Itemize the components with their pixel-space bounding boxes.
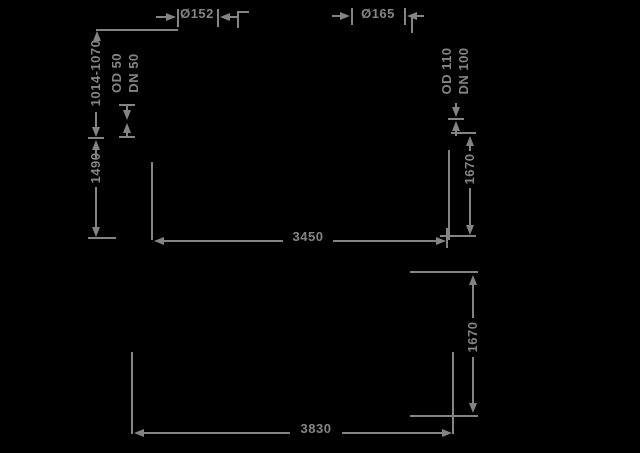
extension-tick — [217, 9, 219, 27]
upper-height-left-label: 1490 — [89, 149, 103, 187]
arrowhead-right — [340, 12, 350, 20]
extension-line — [410, 415, 478, 417]
dimension-line — [472, 357, 474, 405]
dimension-line — [472, 284, 474, 318]
left-pipe-dn-label: DN 50 — [127, 50, 141, 96]
bracket-line — [237, 11, 239, 28]
dimension-line — [95, 187, 97, 228]
dimension-line — [163, 240, 283, 242]
lower-height-right-label: 1670 — [466, 318, 480, 356]
extension-line — [88, 237, 116, 239]
right-connection-diameter-label: Ø165 — [353, 7, 403, 21]
dimension-line — [333, 240, 437, 242]
arrowhead-right — [442, 429, 452, 437]
extension-line — [410, 271, 478, 273]
upper-height-right-label: 1670 — [463, 150, 477, 188]
object-edge — [452, 352, 454, 434]
extension-tick — [404, 8, 406, 25]
bracket-line — [237, 11, 249, 13]
dimension-line — [342, 432, 444, 434]
arrowhead-right — [436, 237, 446, 245]
extension-tick — [448, 118, 464, 120]
bracket-line — [411, 16, 413, 33]
arrowhead-right — [166, 13, 176, 21]
arrowhead-down — [452, 107, 460, 117]
right-pipe-dn-label: DN 100 — [457, 44, 471, 98]
object-edge — [131, 352, 133, 434]
technical-drawing: Ø152 Ø165 1014-1070 OD 50 DN 50 OD 110 D… — [0, 0, 640, 453]
arrowhead-down — [469, 403, 477, 413]
left-connection-diameter-label: Ø152 — [178, 7, 216, 21]
dimension-line — [469, 188, 471, 227]
lower-width-label: 3830 — [290, 422, 342, 436]
dimension-line — [416, 15, 424, 17]
inlet-height-range-label: 1014-1070 — [89, 33, 103, 113]
upper-width-label: 3450 — [283, 230, 333, 244]
object-edge — [448, 150, 450, 240]
object-edge — [151, 162, 153, 240]
arrowhead-down — [466, 225, 474, 235]
arrowhead-down — [123, 110, 131, 120]
reference-line — [96, 29, 178, 31]
arrowhead-down — [92, 127, 100, 137]
dimension-line — [143, 432, 290, 434]
extension-tick — [88, 137, 104, 139]
left-pipe-od-label: OD 50 — [110, 50, 124, 96]
extension-tick — [451, 132, 476, 134]
extension-line — [446, 228, 448, 248]
extension-tick — [119, 136, 135, 138]
arrowhead-down — [92, 227, 100, 237]
right-pipe-od-label: OD 110 — [440, 44, 454, 98]
dimension-line — [126, 126, 128, 136]
